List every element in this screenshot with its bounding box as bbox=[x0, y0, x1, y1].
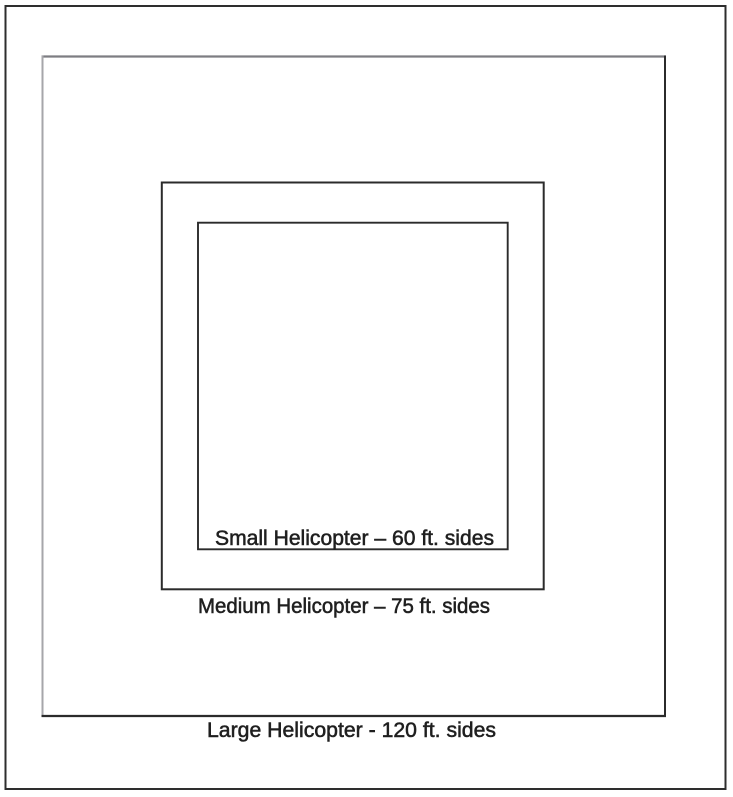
svg-text:Medium Helicopter – 75 ft. sid: Medium Helicopter – 75 ft. sides bbox=[198, 594, 490, 618]
svg-text:Small Helicopter – 60 ft. side: Small Helicopter – 60 ft. sides bbox=[215, 526, 494, 550]
svg-text:Large Helicopter - 120 ft. sid: Large Helicopter - 120 ft. sides bbox=[207, 718, 496, 742]
